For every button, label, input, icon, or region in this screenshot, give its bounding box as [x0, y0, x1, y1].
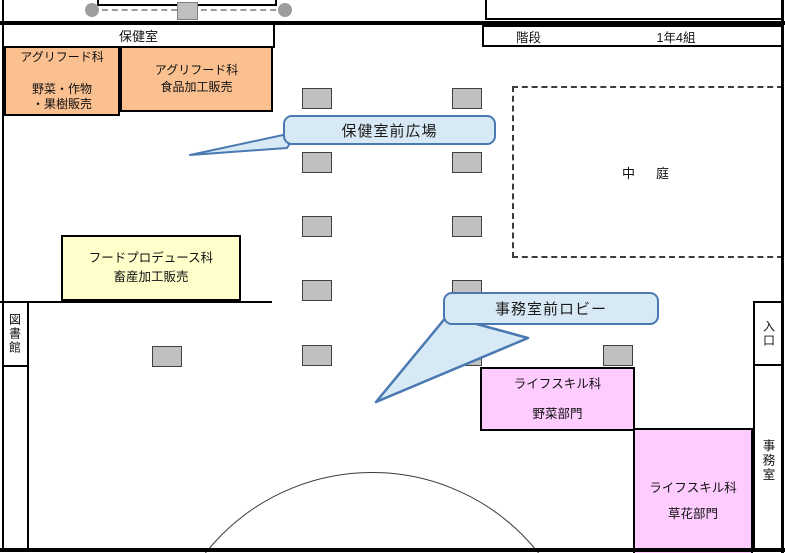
- booth-lifeskill-flower-dept: ライフスキル科: [649, 481, 737, 496]
- courtyard-label: 中 庭: [622, 163, 673, 182]
- lobby-callout-label: 事務室前ロビー: [495, 298, 607, 319]
- desk-marker: [452, 88, 482, 109]
- desk-marker: [302, 216, 332, 237]
- plan-border-bottom: [0, 548, 785, 552]
- class-1-4-cell: 1年4組: [571, 25, 783, 47]
- floor-plan-page: 保健室 階段 1年4組 アグリフード科 野菜・作物 ・果樹販売 アグリフード科 …: [0, 0, 785, 553]
- desk-marker: [603, 345, 633, 366]
- booth-lifeskill-vegetable: ライフスキル科 野菜部門: [480, 367, 635, 431]
- desk-marker: [302, 345, 332, 366]
- booth-agrifood-vegetable-dept: アグリフード科: [20, 50, 103, 65]
- entrance-cell: 入口: [753, 301, 783, 366]
- office-label: 事務室: [759, 439, 778, 483]
- stage-step-marker: [177, 2, 198, 20]
- booth-agrifood-food-dept: アグリフード科: [155, 63, 238, 78]
- booth-food-produce: フードプロデュース科 畜産加工販売: [61, 235, 241, 301]
- top-right-wall-vertical: [485, 0, 487, 19]
- plaza-callout-label: 保健室前広場: [341, 120, 437, 141]
- bottom-circle-outline: [159, 472, 585, 553]
- desk-marker: [152, 346, 182, 367]
- courtyard-area: 中 庭: [512, 86, 783, 258]
- class-1-4-label: 1年4組: [657, 27, 696, 46]
- office-label-cell: 事務室: [755, 430, 781, 492]
- booth-food-produce-dept: フードプロデュース科: [89, 250, 213, 267]
- library-label: 図書館: [7, 313, 24, 355]
- plan-border-left: [2, 0, 4, 552]
- library-cell-divider: [2, 365, 27, 367]
- desk-marker: [302, 152, 332, 173]
- booth-lifeskill-vegetable-line2: 野菜部門: [532, 407, 582, 422]
- desk-marker: [452, 345, 482, 366]
- booth-agrifood-vegetable-line3: ・果樹販売: [32, 97, 92, 112]
- desk-marker: [452, 216, 482, 237]
- stairs-cell: 階段: [482, 25, 575, 47]
- desk-marker: [302, 280, 332, 301]
- plaza-callout-tail: [190, 132, 297, 155]
- plan-border-top: [0, 21, 785, 25]
- left-wall-horizontal: [0, 301, 272, 303]
- booth-agrifood-vegetable: アグリフード科 野菜・作物 ・果樹販売: [4, 46, 120, 116]
- booth-lifeskill-flower: ライフスキル科 草花部門: [633, 428, 753, 553]
- library-wall-vertical: [27, 301, 29, 548]
- stage-caster-left-icon: [85, 3, 99, 17]
- entrance-label: 入口: [761, 320, 778, 348]
- booth-lifeskill-flower-line2: 草花部門: [668, 507, 718, 522]
- booth-agrifood-food-line2: 食品加工販売: [160, 80, 232, 95]
- plan-border-right: [781, 0, 784, 553]
- stairs-label: 階段: [516, 27, 541, 46]
- health-room-label-cell: 保健室: [4, 25, 275, 48]
- booth-agrifood-food: アグリフード科 食品加工販売: [120, 46, 273, 112]
- plaza-callout: 保健室前広場: [283, 115, 496, 145]
- health-room-label: 保健室: [119, 26, 158, 45]
- stage-caster-right-icon: [278, 3, 292, 17]
- lobby-callout: 事務室前ロビー: [443, 292, 659, 325]
- booth-agrifood-vegetable-line2: 野菜・作物: [32, 82, 92, 97]
- library-label-cell: 図書館: [3, 305, 27, 363]
- desk-marker: [452, 152, 482, 173]
- booth-food-produce-line2: 畜産加工販売: [113, 269, 188, 286]
- desk-marker: [302, 88, 332, 109]
- booth-lifeskill-vegetable-dept: ライフスキル科: [514, 377, 602, 392]
- top-right-wall-horizontal: [485, 18, 782, 20]
